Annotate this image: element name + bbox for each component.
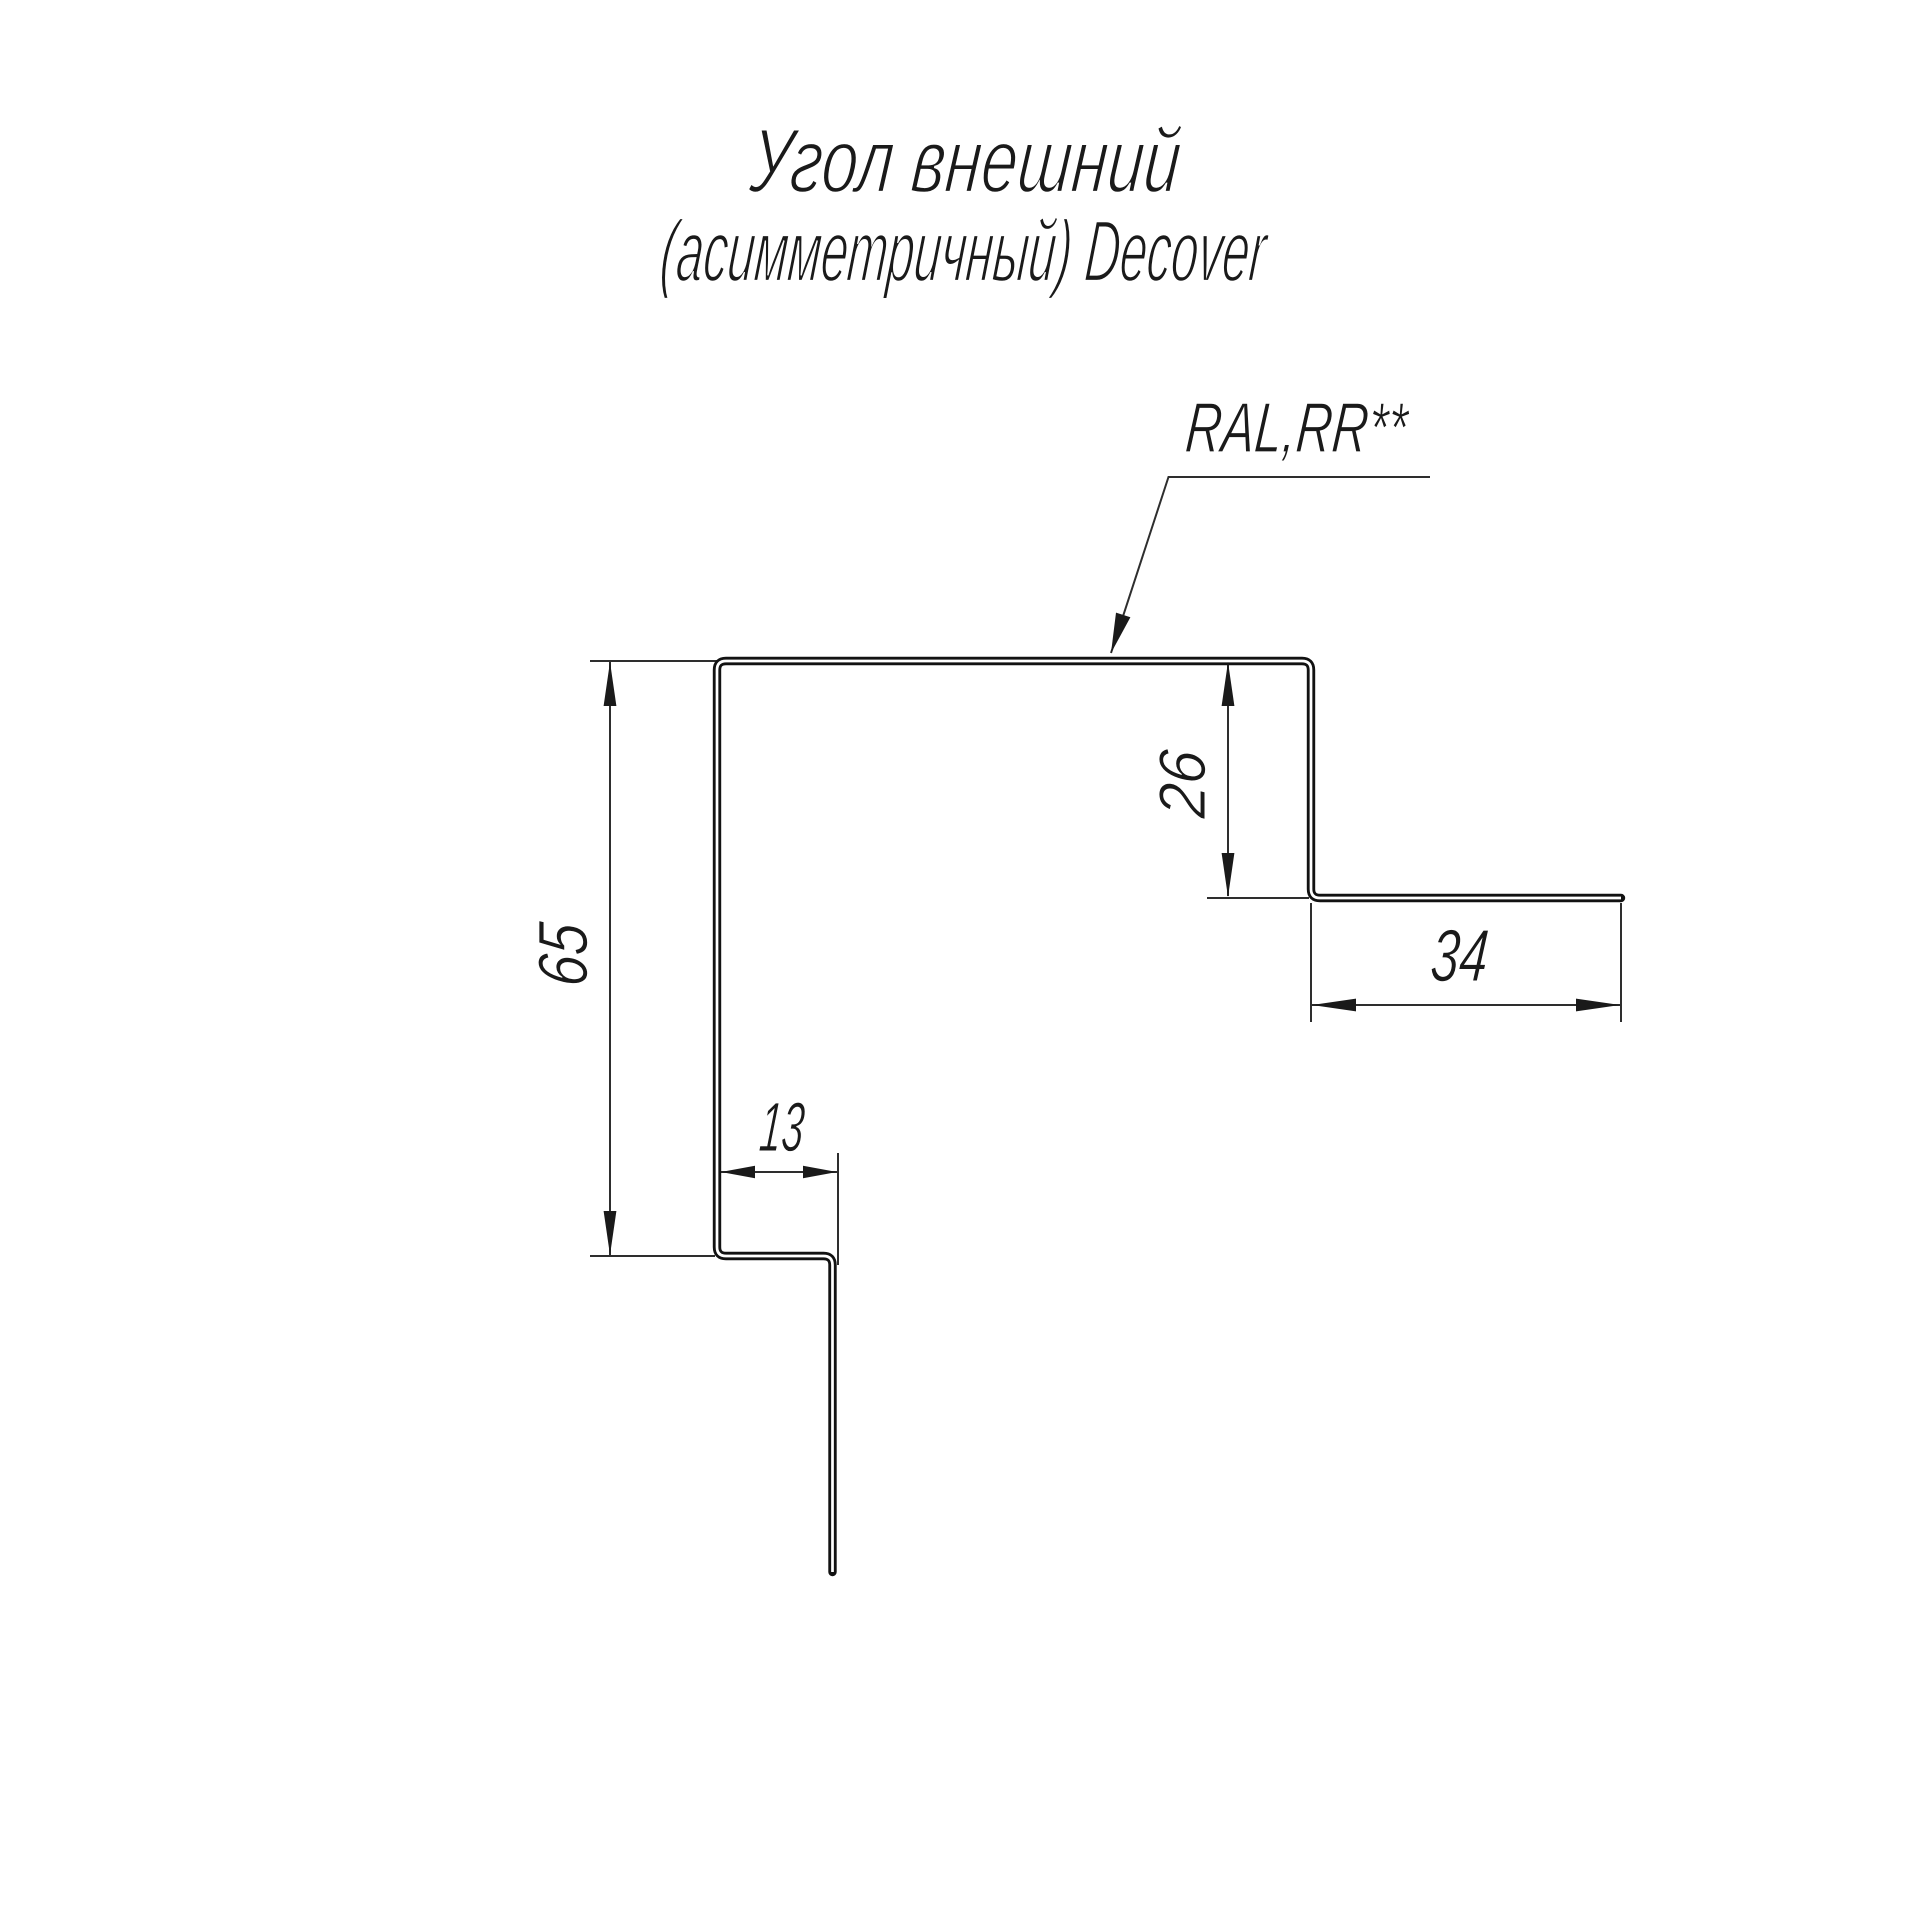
svg-text:26: 26 — [1146, 747, 1220, 822]
svg-text:Угол внешний: Угол внешний — [746, 110, 1186, 212]
svg-text:13: 13 — [757, 1088, 808, 1166]
svg-text:(асимметричный) Decover: (асимметричный) Decover — [657, 203, 1272, 300]
svg-text:RAL,RR**: RAL,RR** — [1183, 389, 1413, 468]
svg-text:34: 34 — [1428, 914, 1492, 997]
svg-text:65: 65 — [524, 919, 602, 990]
